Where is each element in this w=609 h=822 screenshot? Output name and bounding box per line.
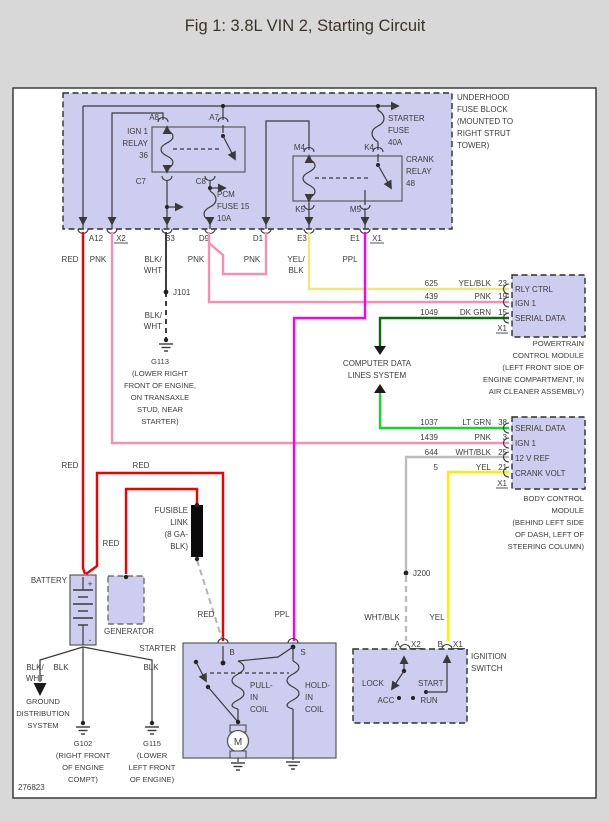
pcm-pin-label: IGN 1: [515, 299, 536, 308]
fusible-link-label: LINK: [170, 518, 188, 527]
terminal-d1: D1: [253, 234, 264, 243]
position-run: RUN: [420, 696, 438, 705]
pin-a8: A8: [149, 113, 159, 122]
ignition-connector-x2: X2: [411, 640, 421, 649]
circuit-number: 1037: [420, 418, 438, 427]
bcm-name: STEERING COLUMN): [508, 542, 585, 551]
wire-color-pnk: PNK: [244, 255, 261, 264]
wire-color-blkwht: BLK/: [145, 311, 163, 320]
bcm-pin-label: 12 V REF: [515, 454, 550, 463]
pin-a7: A7: [209, 113, 219, 122]
pin-k5: K5: [295, 205, 305, 214]
pcm-pin-number: 19: [498, 292, 507, 301]
g113-label: STARTER): [141, 417, 179, 426]
circuit-number: 5: [434, 463, 439, 472]
generator: [108, 575, 144, 624]
junction-j200: J200: [413, 569, 431, 578]
bcm-pin-number: 3: [503, 433, 508, 442]
wire-label-yel: YEL: [429, 613, 445, 622]
g102-label: G102: [74, 739, 93, 748]
wire-label-red: RED: [198, 610, 215, 619]
battery-plus: +: [87, 579, 92, 589]
fuse-block-label: RIGHT STRUT: [457, 129, 511, 138]
position-start: START: [418, 679, 444, 688]
fusible-link: [191, 503, 203, 561]
pcm-pin-label: RLY CTRL: [515, 285, 553, 294]
hold-in-label: COIL: [305, 705, 324, 714]
starter-terminal-b: B: [229, 648, 234, 657]
pin-c7: C7: [136, 177, 147, 186]
fusible-link-label: FUSIBLE: [155, 506, 188, 515]
motor: M: [228, 725, 249, 762]
g113-label: (LOWER RIGHT: [132, 369, 188, 378]
crank-relay-label: RELAY: [406, 167, 432, 176]
pcm-name: AIR CLEANER ASSEMBLY): [489, 387, 585, 396]
circuit-color: LT GRN: [462, 418, 491, 427]
ignition-terminal-b: B: [438, 640, 443, 649]
starter-fuse-label: 40A: [388, 138, 403, 147]
fusible-link-label: BLK): [170, 542, 188, 551]
wire-label-red: RED: [103, 539, 120, 548]
g102-label: COMPT): [68, 775, 98, 784]
battery-label: BATTERY: [31, 576, 68, 585]
pcm-name: CONTROL MODULE: [513, 351, 584, 360]
fuse-block-label: (MOUNTED TO: [457, 117, 513, 126]
pull-in-label: IN: [250, 693, 258, 702]
terminal-e3: E3: [297, 234, 307, 243]
bcm-connector-x1: X1: [497, 479, 507, 488]
g115-label: LEFT FRONT: [129, 763, 176, 772]
pcm-name: POWERTRAIN: [533, 339, 584, 348]
connector-x2: X2: [116, 234, 126, 243]
circuit-number: 439: [425, 292, 439, 301]
pin-m5: M5: [350, 205, 362, 214]
bcm-pin-label: SERIAL DATA: [515, 424, 566, 433]
junction-j101: J101: [173, 288, 191, 297]
pin-c8: C8: [196, 177, 207, 186]
bcm-pin-label: IGN 1: [515, 439, 536, 448]
battery-minus: -: [89, 635, 92, 645]
g102-label: (RIGHT FRONT: [56, 751, 111, 760]
wire-label-red: RED: [133, 461, 150, 470]
wire-color-blkwht: BLK/: [144, 255, 162, 264]
wire-color-yelblk: YEL/: [287, 255, 305, 264]
pull-in-label: PULL-: [250, 681, 273, 690]
fuse-block-label: UNDERHOOD: [457, 93, 510, 102]
bcm-pin-label: CRANK VOLT: [515, 469, 566, 478]
wire-color-pnk: PNK: [188, 255, 205, 264]
pcm-pin-number: 23: [498, 279, 507, 288]
pull-in-label: COIL: [250, 705, 269, 714]
motor-m: M: [234, 737, 242, 748]
starter-fuse-label: FUSE: [388, 126, 409, 135]
terminal-e1: E1: [350, 234, 360, 243]
circuit-color: PNK: [475, 433, 492, 442]
page-title: Fig 1: 3.8L VIN 2, Starting Circuit: [185, 17, 426, 35]
wire-label-ppl: PPL: [274, 610, 290, 619]
starter-terminal-s: S: [300, 648, 305, 657]
g115-label: OF ENGINE): [130, 775, 175, 784]
pcm-fuse-label: 10A: [217, 214, 232, 223]
wire-color-blk: BLK: [53, 663, 69, 672]
wire-color-blkwht: WHT: [26, 674, 44, 683]
pcm-connector-x1: X1: [497, 324, 507, 333]
ignition-label: SWITCH: [471, 664, 503, 673]
g113-label: G113: [151, 357, 169, 366]
ignition-connector-x1: X1: [453, 640, 463, 649]
ign1-relay-label: 36: [139, 151, 148, 160]
circuit-number: 644: [425, 448, 439, 457]
pin-m4: M4: [294, 143, 306, 152]
wire-color-pnk: PNK: [90, 255, 107, 264]
g102-label: OF ENGINE: [62, 763, 104, 772]
ground-dist-label: DISTRIBUTION: [16, 709, 70, 718]
fuse-block-label: TOWER): [457, 141, 490, 150]
g115-label: G115: [143, 739, 161, 748]
bcm-name: BODY CONTROL: [523, 494, 584, 503]
position-lock: LOCK: [362, 679, 384, 688]
ground-dist-label: GROUND: [26, 697, 60, 706]
wire-color-blkwht: WHT: [144, 322, 162, 331]
computer-data-label: LINES SYSTEM: [348, 371, 407, 380]
bcm-name: (BEHIND LEFT SIDE: [512, 518, 584, 527]
hold-in-label: HOLD-: [305, 681, 330, 690]
wire-color-blkwht: BLK/: [26, 663, 44, 672]
circuit-color: YEL/BLK: [459, 279, 492, 288]
crank-relay-label: 48: [406, 179, 415, 188]
wire-color-ppl: PPL: [342, 255, 358, 264]
battery: + -: [70, 575, 96, 645]
starter-label: STARTER: [139, 644, 176, 653]
pcm-pin-number: 15: [498, 308, 507, 317]
wiring-diagram: Fig 1: 3.8L VIN 2, Starting Circuit UNDE…: [0, 0, 609, 822]
g113-label: STUD, NEAR: [137, 405, 184, 414]
wire-color-red: RED: [62, 255, 79, 264]
circuit-color: DK GRN: [460, 308, 491, 317]
bcm-name: MODULE: [552, 506, 585, 515]
bcm-pin-number: 38: [498, 418, 507, 427]
starter-fuse-label: STARTER: [388, 114, 425, 123]
generator-label: GENERATOR: [104, 627, 154, 636]
wire-color-blkwht: WHT: [144, 266, 162, 275]
g113-label: ON TRANSAXLE: [131, 393, 190, 402]
wire-color-blk: BLK: [143, 663, 159, 672]
hold-in-label: IN: [305, 693, 313, 702]
circuit-number: 625: [425, 279, 439, 288]
circuit-number: 1439: [420, 433, 438, 442]
pcm-fuse-label: FUSE 15: [217, 202, 250, 211]
fusible-link-label: (8 GA-: [164, 530, 188, 539]
circuit-color: YEL: [476, 463, 492, 472]
pcm-name: ENGINE COMPARTMENT, IN: [483, 375, 584, 384]
starter-outline: [183, 643, 336, 758]
ignition-label: IGNITION: [471, 652, 507, 661]
wire-color-yelblk: BLK: [288, 266, 304, 275]
connector-x1: X1: [372, 234, 382, 243]
bcm-pin-number: 25: [498, 448, 507, 457]
pin-k4: K4: [364, 143, 374, 152]
ground-dist-label: SYSTEM: [27, 721, 58, 730]
computer-data-label: COMPUTER DATA: [343, 359, 412, 368]
ign1-relay-label: IGN 1: [127, 127, 148, 136]
wire-label-red: RED: [62, 461, 79, 470]
ign1-relay-label: RELAY: [122, 139, 148, 148]
pcm-pin-label: SERIAL DATA: [515, 314, 566, 323]
fuse-block-label: FUSE BLOCK: [457, 105, 508, 114]
pcm-name: (LEFT FRONT SIDE OF: [502, 363, 584, 372]
wire-label-wht-blk: WHT/BLK: [364, 613, 400, 622]
pcm-fuse-label: PCM: [217, 190, 235, 199]
crank-relay-label: CRANK: [406, 155, 435, 164]
circuit-color: PNK: [475, 292, 492, 301]
page: Fig 1: 3.8L VIN 2, Starting Circuit UNDE…: [0, 0, 609, 822]
doc-number: 276823: [18, 783, 45, 792]
g113-label: FRONT OF ENGINE,: [124, 381, 196, 390]
bcm-pin-number: 21: [498, 463, 507, 472]
bcm-name: OF DASH, LEFT OF: [515, 530, 584, 539]
terminal-a12: A12: [89, 234, 104, 243]
g115-label: (LOWER: [137, 751, 168, 760]
position-acc: ACC: [378, 696, 395, 705]
circuit-number: 1049: [420, 308, 438, 317]
ignition-terminal-a: A: [395, 640, 401, 649]
circuit-color: WHT/BLK: [455, 448, 491, 457]
